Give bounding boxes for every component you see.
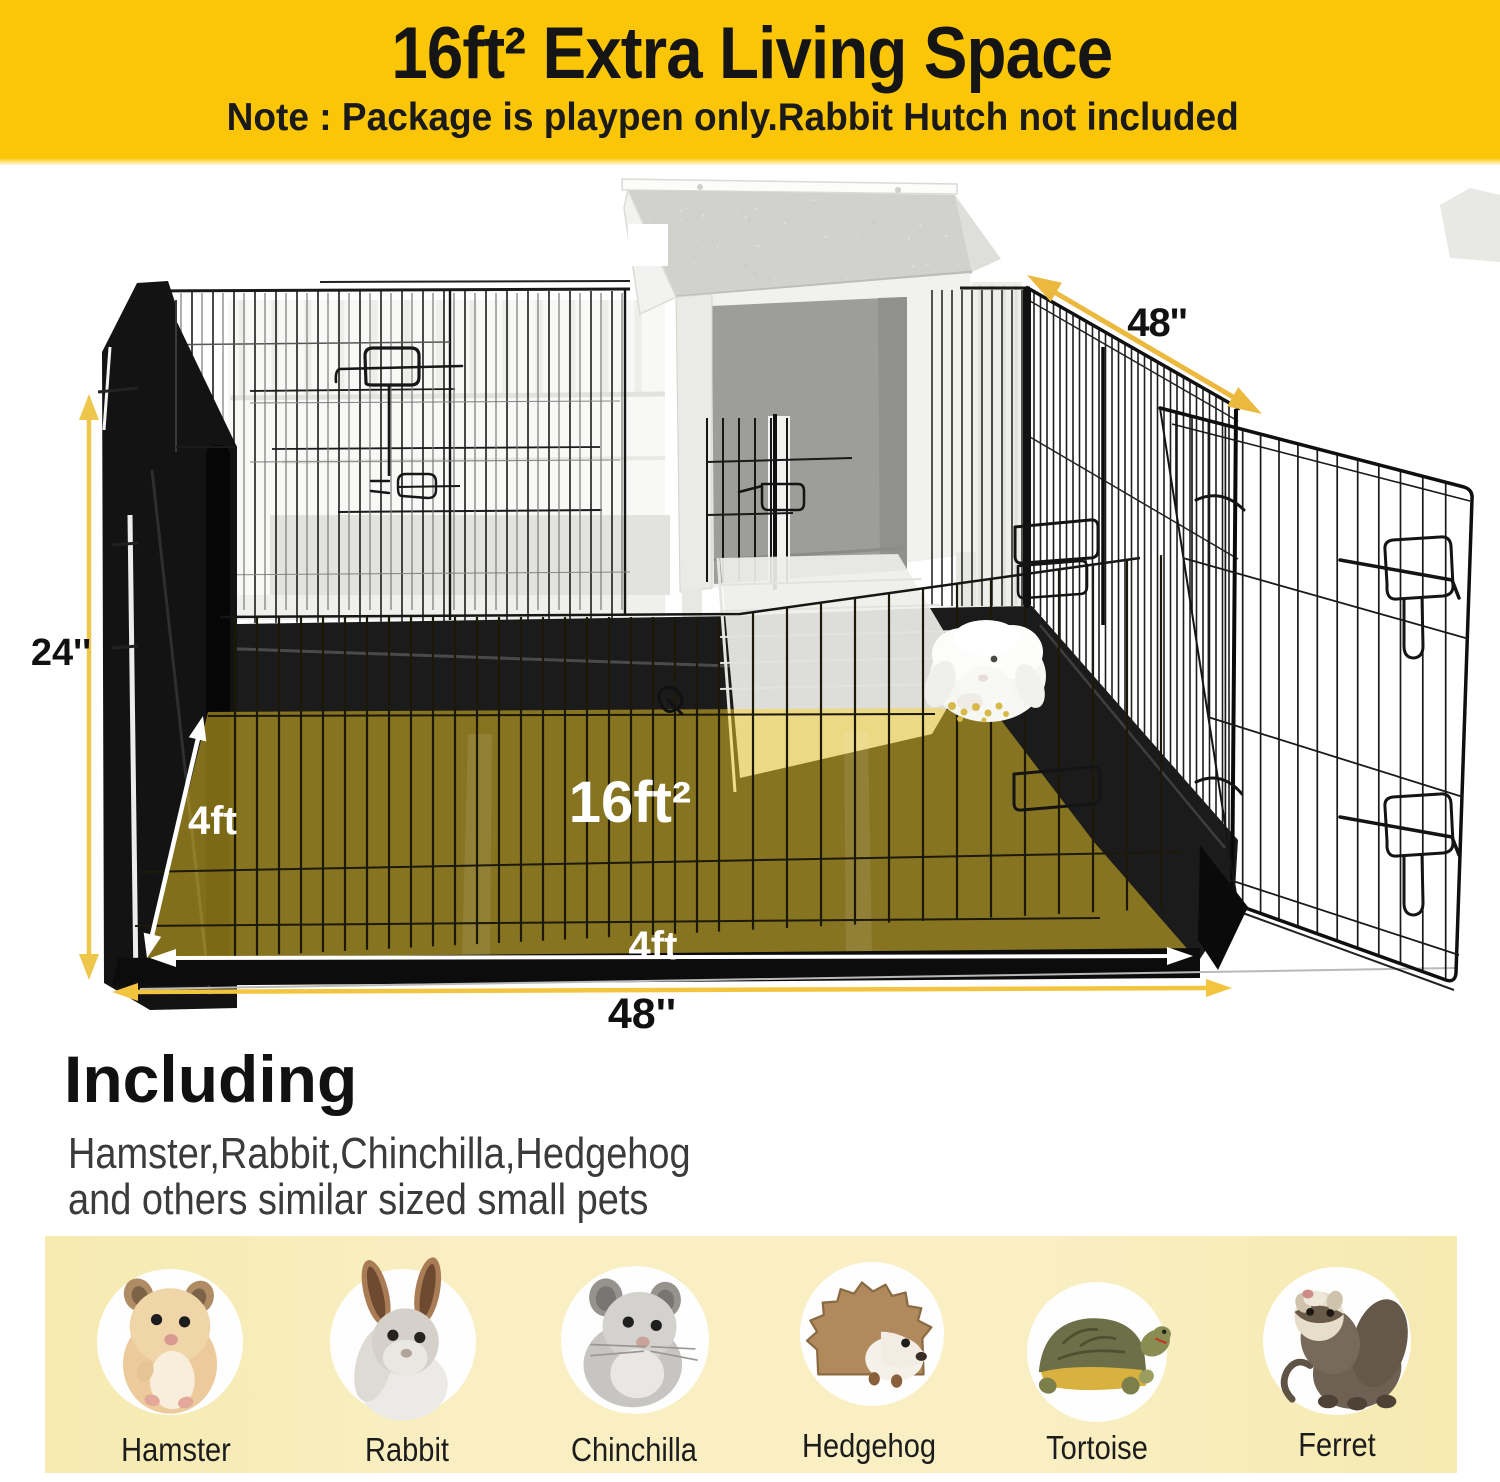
svg-text:Ferret: Ferret bbox=[1298, 1426, 1376, 1463]
svg-text:Rabbit: Rabbit bbox=[365, 1431, 449, 1468]
svg-text:Chinchilla: Chinchilla bbox=[571, 1431, 698, 1468]
svg-text:Hedgehog: Hedgehog bbox=[802, 1427, 936, 1464]
svg-text:Hamster: Hamster bbox=[121, 1431, 231, 1468]
svg-text:Tortoise: Tortoise bbox=[1046, 1429, 1148, 1466]
